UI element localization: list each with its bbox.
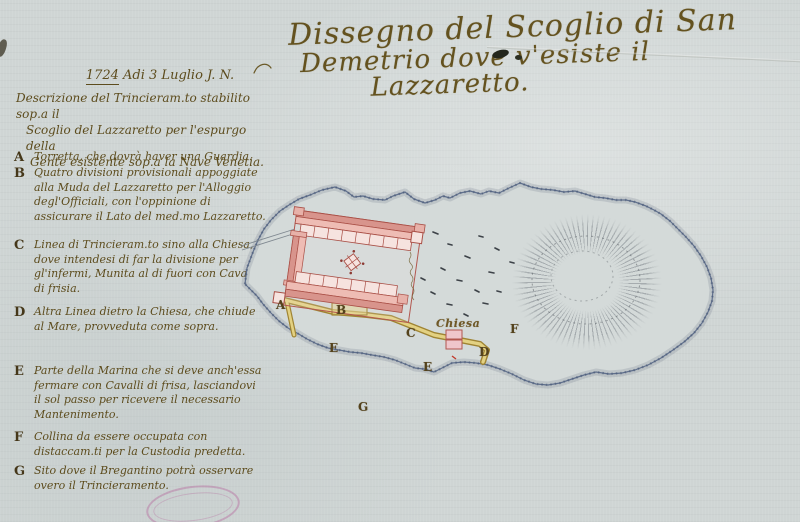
map-label-f: F: [510, 322, 519, 336]
ink-blot-small: [515, 55, 522, 60]
date-year: 1724: [86, 68, 119, 85]
legend-text-b: Quatro divisioni provisionali appoggiate…: [34, 166, 266, 224]
legend-letter-c: C: [14, 238, 30, 296]
manuscript-page: Dissegno del Scoglio di San Demetrio dov…: [0, 0, 800, 522]
date-line: 1724 Adi 3 Luglio J. N.: [50, 68, 270, 83]
map-label-e-west: E: [329, 341, 338, 355]
date-rest: Adi 3 Luglio J. N.: [123, 68, 234, 83]
description-line-1: Descrizione del Trincieram.to stabilito …: [16, 90, 276, 122]
legend-item-e: E Parte della Marina che si deve anch'es…: [14, 364, 266, 422]
archive-stamp-inner-ring: [152, 488, 235, 522]
legend-text-a: Torretta, che dovrà haver una Guardia.: [34, 150, 253, 165]
map-label-e-east: E: [423, 360, 432, 374]
legend-text-c: Linea di Trincieram.to sino alla Chiesa,…: [34, 238, 266, 296]
legend-text-g: Sito dove il Bregantino potrà osservare …: [34, 464, 266, 493]
hill-radial-hatching: [512, 214, 662, 350]
map-label-g: G: [358, 400, 368, 414]
legend-letter-b: B: [14, 166, 30, 224]
legend-letter-d: D: [14, 305, 30, 334]
legend-item-f: F Collina da essere occupata con distacc…: [14, 430, 266, 459]
legend-text-f: Collina da essere occupata con distaccam…: [34, 430, 266, 459]
legend-letter-e: E: [14, 364, 30, 422]
legend-letter-g: G: [14, 464, 30, 493]
legend-item-c: C Linea di Trincieram.to sino alla Chies…: [14, 238, 266, 296]
legend-letter-a: A: [14, 150, 30, 165]
ink-flourish: [252, 60, 274, 76]
map-label-d: D: [479, 345, 489, 359]
legend-text-d: Altra Linea dietro la Chiesa, che chiude…: [34, 305, 266, 334]
map-label-c: C: [406, 326, 416, 340]
legend-item-a: A Torretta, che dovrà haver una Guardia.: [14, 150, 266, 165]
legend-item-d: D Altra Linea dietro la Chiesa, che chiu…: [14, 305, 266, 334]
corner-tower-ne: [411, 231, 423, 243]
edge-ink-mark: [0, 38, 9, 58]
map-label-b: B: [336, 303, 346, 317]
legend-item-b: B Quatro divisioni provisionali appoggia…: [14, 166, 266, 224]
legend-letter-f: F: [14, 430, 30, 459]
map-label-a: A: [276, 298, 285, 312]
chiesa-label: Chiesa: [436, 317, 480, 330]
legend-text-e: Parte della Marina che si deve anch'essa…: [34, 364, 266, 422]
